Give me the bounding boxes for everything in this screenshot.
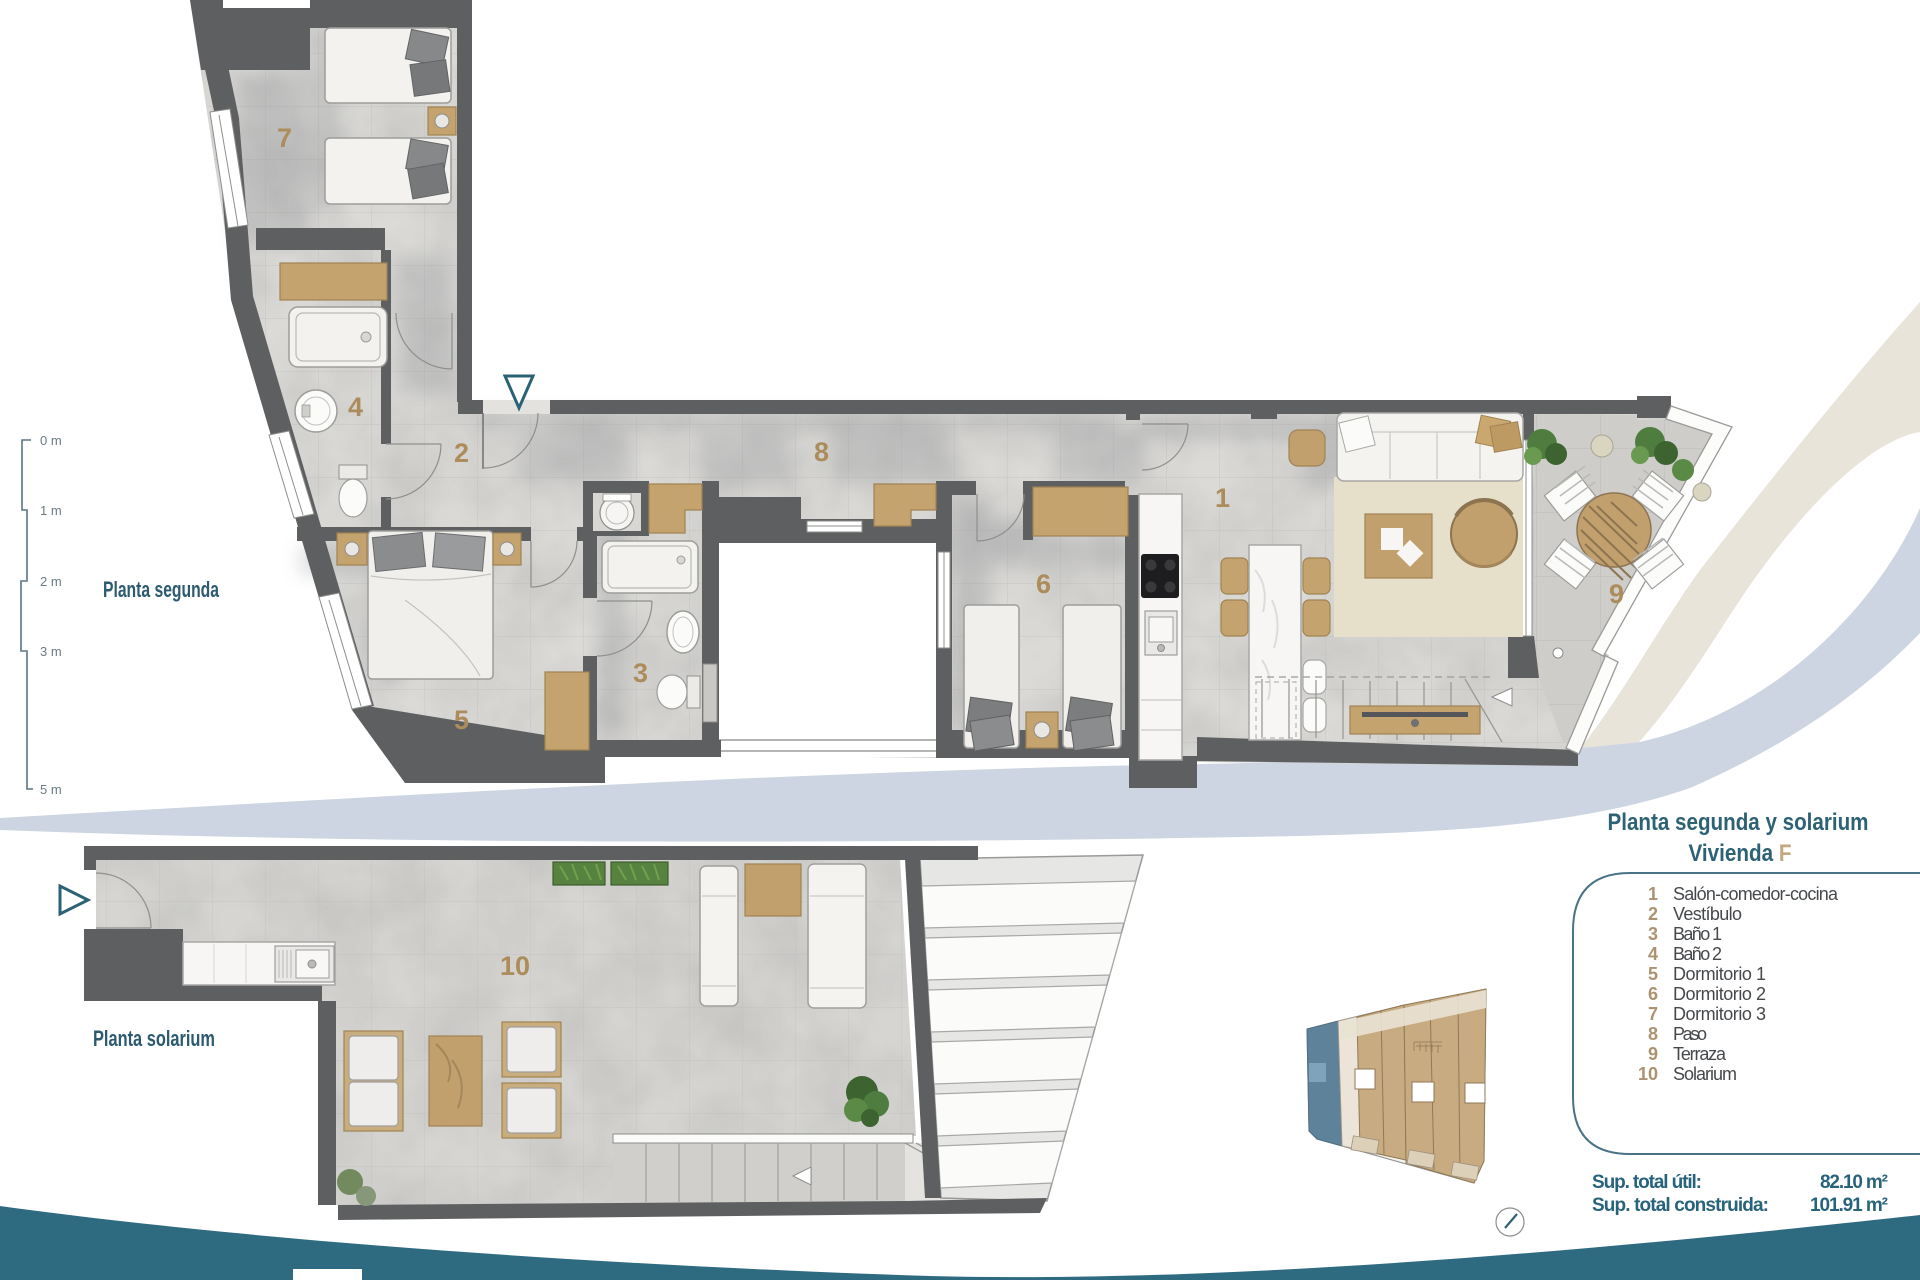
svg-text:4: 4 [1648, 944, 1658, 964]
svg-text:9: 9 [1648, 1044, 1658, 1064]
svg-text:2: 2 [454, 438, 469, 468]
svg-text:Salón-comedor-cocina: Salón-comedor-cocina [1673, 884, 1839, 904]
svg-text:7: 7 [1648, 1004, 1658, 1024]
svg-text:1: 1 [1215, 483, 1230, 513]
svg-text:Solarium: Solarium [1673, 1064, 1737, 1084]
svg-text:Terraza: Terraza [1673, 1044, 1727, 1064]
svg-text:Sup. total construida:: Sup. total construida: [1592, 1195, 1769, 1216]
svg-text:6: 6 [1036, 569, 1051, 599]
svg-text:5 m: 5 m [40, 782, 62, 797]
svg-text:82.10 m²: 82.10 m² [1820, 1172, 1888, 1193]
svg-text:10: 10 [1638, 1064, 1658, 1084]
svg-text:5: 5 [1648, 964, 1658, 984]
svg-text:7: 7 [277, 123, 292, 153]
svg-text:Dormitorio 1: Dormitorio 1 [1673, 964, 1766, 984]
svg-text:Planta solarium: Planta solarium [93, 1026, 215, 1051]
svg-text:4: 4 [348, 392, 363, 422]
svg-text:Baño 2: Baño 2 [1673, 944, 1722, 964]
svg-text:101.91 m²: 101.91 m² [1810, 1195, 1888, 1216]
svg-text:Vestíbulo: Vestíbulo [1673, 904, 1742, 924]
svg-text:3: 3 [1648, 924, 1658, 944]
svg-text:6: 6 [1648, 984, 1658, 1004]
svg-text:Dormitorio 3: Dormitorio 3 [1673, 1004, 1766, 1024]
svg-text:2 m: 2 m [40, 574, 62, 589]
svg-text:8: 8 [1648, 1024, 1658, 1044]
svg-text:Dormitorio 2: Dormitorio 2 [1673, 984, 1766, 1004]
svg-text:5: 5 [454, 705, 469, 735]
svg-text:10: 10 [500, 951, 530, 981]
svg-text:Baño 1: Baño 1 [1673, 924, 1722, 944]
svg-text:Vivienda F: Vivienda F [1689, 840, 1792, 867]
svg-text:Paso: Paso [1673, 1024, 1707, 1044]
svg-text:Planta segunda y solarium: Planta segunda y solarium [1608, 809, 1869, 836]
svg-text:2: 2 [1648, 904, 1658, 924]
svg-text:3: 3 [633, 658, 648, 688]
svg-text:Planta segunda: Planta segunda [103, 577, 220, 602]
svg-text:0 m: 0 m [40, 433, 62, 448]
svg-text:8: 8 [814, 437, 829, 467]
svg-text:1 m: 1 m [40, 503, 62, 518]
svg-text:9: 9 [1609, 579, 1624, 609]
svg-text:1: 1 [1648, 884, 1658, 904]
svg-text:Sup. total útil:: Sup. total útil: [1592, 1172, 1702, 1193]
svg-text:3 m: 3 m [40, 644, 62, 659]
